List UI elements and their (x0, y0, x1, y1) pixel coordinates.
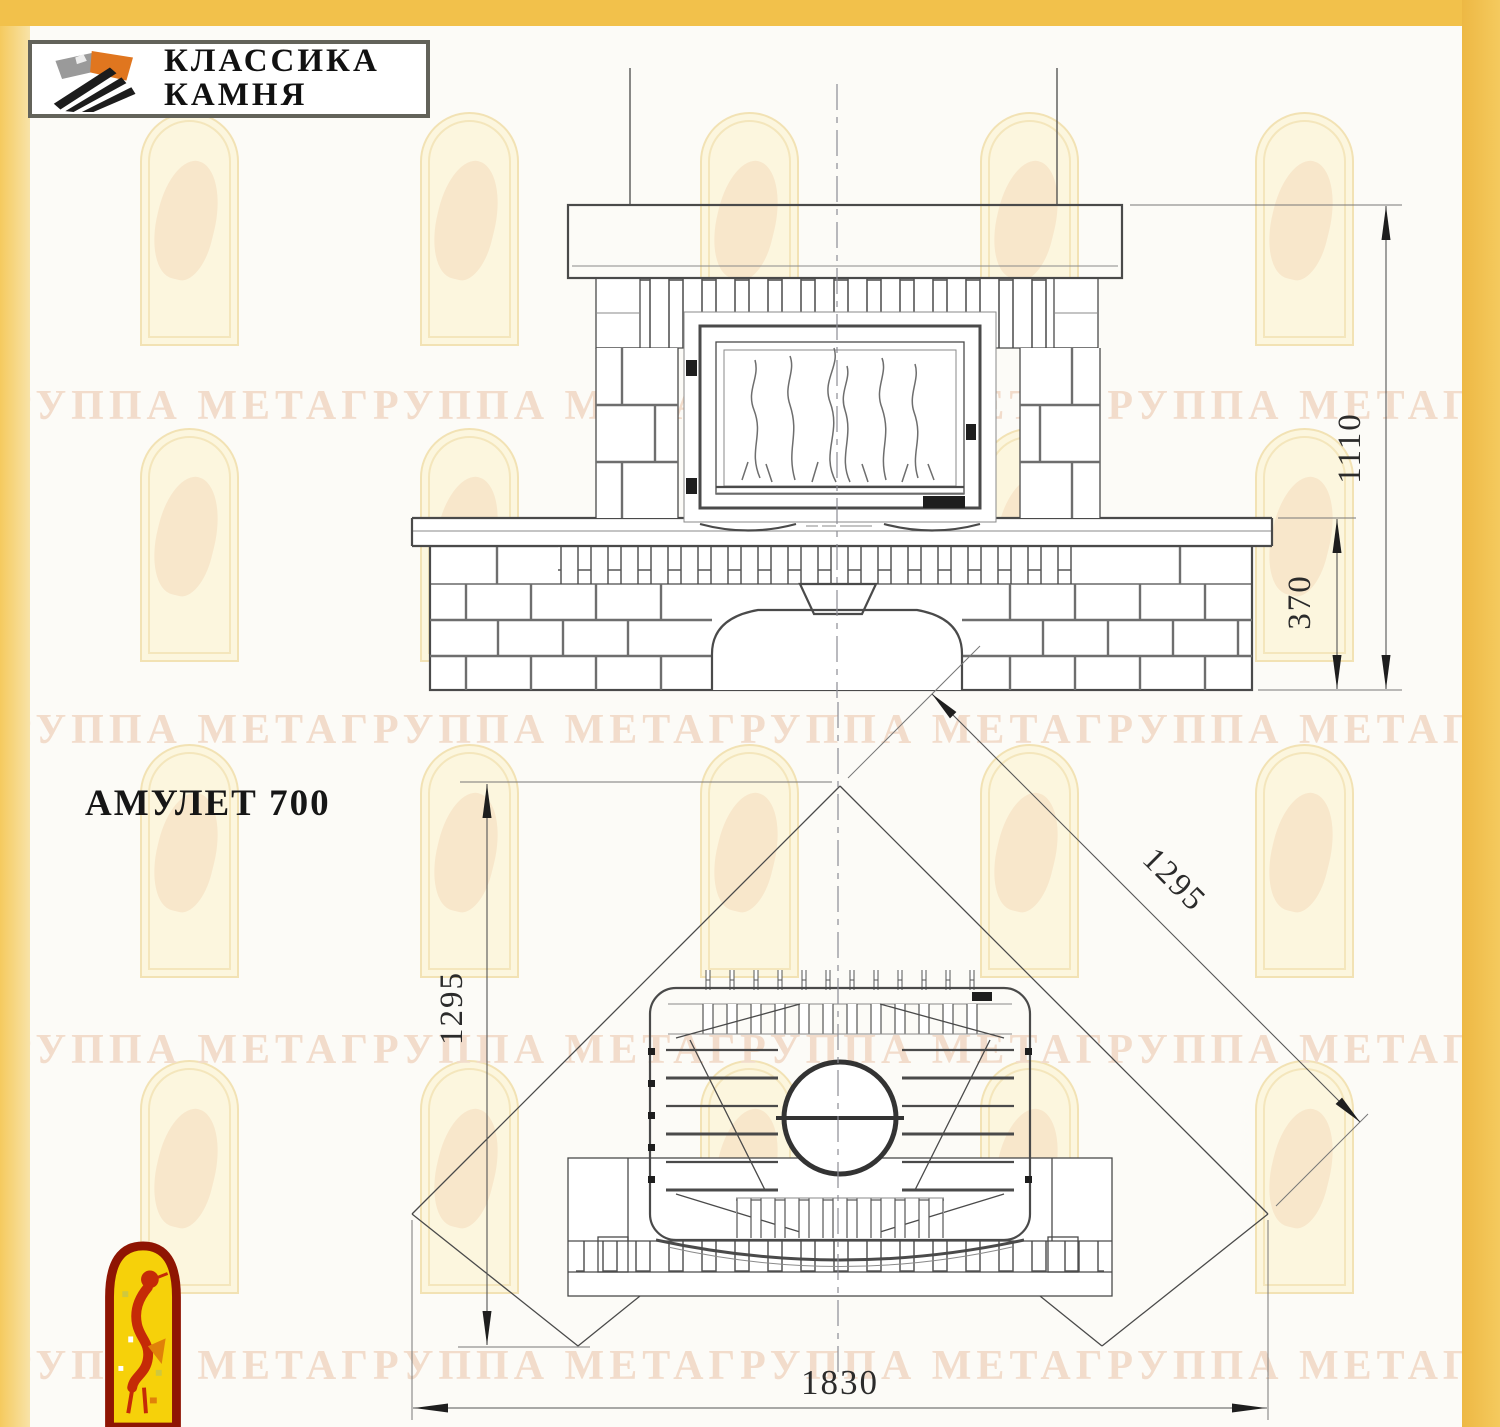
dim-depth: 1295 (434, 971, 470, 1045)
dim-bench-height: 370 (1282, 574, 1318, 630)
dim-width: 1830 (801, 1363, 879, 1402)
brand-name-line2: КАМНЯ (164, 79, 380, 113)
stone-logo-icon (44, 46, 156, 112)
brand-logo: КЛАССИКА КАМНЯ (28, 40, 430, 118)
dim-side: 1295 (1135, 841, 1213, 919)
page-title: АМУЛЕТ 700 (85, 782, 331, 825)
brand-name-line1: КЛАССИКА (164, 45, 380, 79)
page: ГРУППА МЕТАГРУППА МЕТАГРУППА МЕТАГРУППА … (0, 0, 1500, 1427)
front-view-drawing (412, 68, 1272, 690)
bird-emblem (104, 1240, 182, 1427)
dim-total-height: 1110 (1332, 412, 1368, 484)
technical-drawing: 1110 370 1295 1295 (0, 0, 1500, 1427)
